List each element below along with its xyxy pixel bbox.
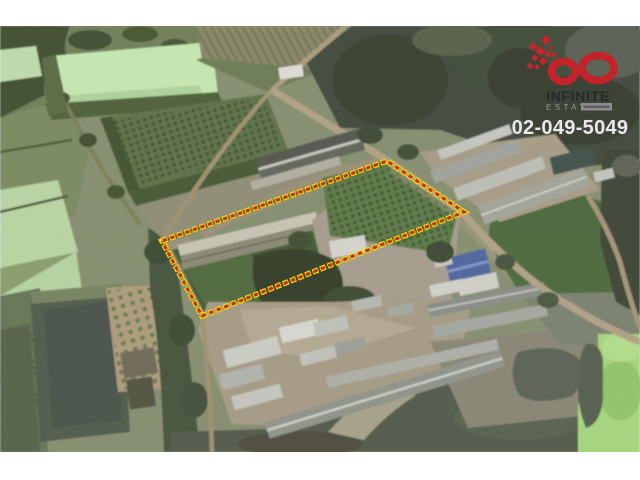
svg-text:02-049-5049: 02-049-5049 <box>512 117 629 139</box>
svg-text:INFINITE: INFINITE <box>546 88 610 104</box>
